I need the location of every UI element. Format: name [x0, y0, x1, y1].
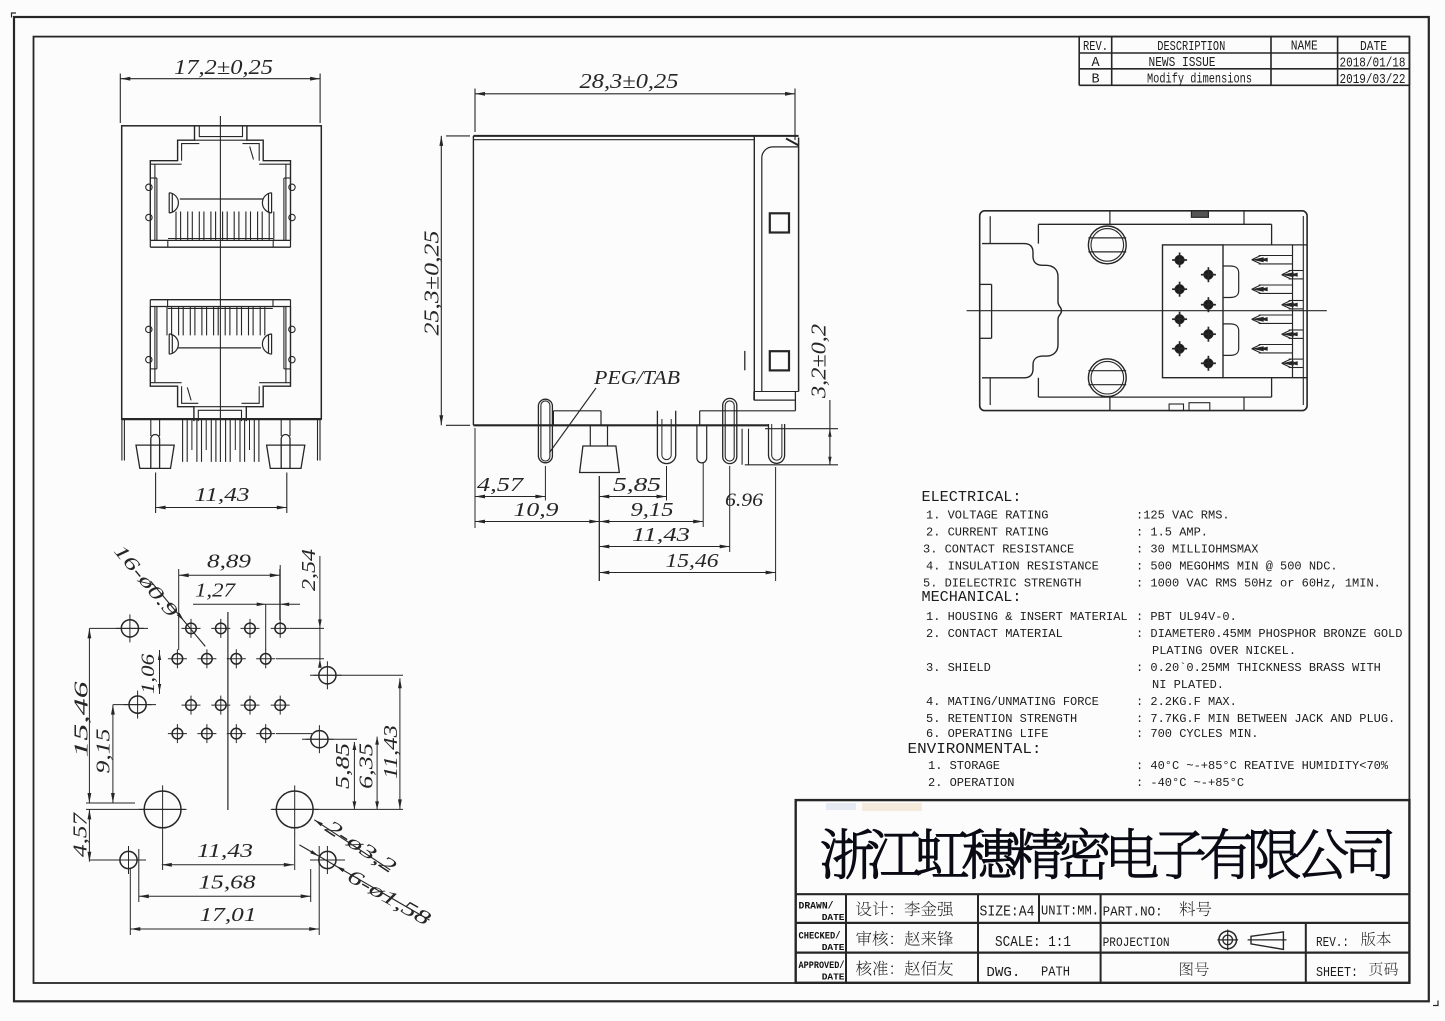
- svg-text:2. CONTACT MATERIAL: 2. CONTACT MATERIAL: [926, 627, 1063, 641]
- svg-text:SIZE:A4: SIZE:A4: [980, 903, 1035, 920]
- svg-text:REV.:: REV.:: [1316, 936, 1349, 951]
- svg-text:DRAWN/: DRAWN/: [799, 901, 834, 913]
- svg-text:ELECTRICAL:: ELECTRICAL:: [922, 488, 1022, 506]
- svg-text:: 30 MILLIOHMSMAX: : 30 MILLIOHMSMAX: [1136, 543, 1258, 557]
- svg-text:PART.NO:: PART.NO:: [1103, 904, 1163, 920]
- svg-text:1,27: 1,27: [195, 580, 236, 602]
- svg-text:NAME: NAME: [1291, 40, 1318, 55]
- svg-text:PLATING OVER NICKEL.: PLATING OVER NICKEL.: [1152, 644, 1296, 658]
- svg-text:8,89: 8,89: [207, 551, 251, 573]
- svg-text:: 500 MEGOHMS MIN @ 500 NDC.: : 500 MEGOHMS MIN @ 500 NDC.: [1136, 560, 1338, 574]
- svg-text:11,43: 11,43: [197, 840, 253, 862]
- svg-text:3. CONTACT RESISTANCE: 3. CONTACT RESISTANCE: [923, 543, 1074, 557]
- svg-text:: 1.5 AMP.: : 1.5 AMP.: [1136, 526, 1208, 540]
- svg-text:11,43: 11,43: [195, 484, 250, 506]
- svg-text:DATE: DATE: [1360, 40, 1387, 55]
- svg-text:9,15: 9,15: [631, 499, 674, 521]
- svg-text:4. INSULATION RESISTANCE: 4. INSULATION RESISTANCE: [926, 560, 1099, 574]
- svg-text:CHECKED/: CHECKED/: [799, 931, 841, 943]
- svg-text:6. OPERATING LIFE: 6. OPERATING LIFE: [926, 727, 1048, 741]
- svg-text:2. CURRENT RATING: 2. CURRENT RATING: [926, 526, 1048, 540]
- svg-text:1. HOUSING & INSERT MATERIAL: 1. HOUSING & INSERT MATERIAL: [926, 610, 1128, 624]
- svg-text:11,43: 11,43: [380, 725, 402, 779]
- svg-text:2019/03/22: 2019/03/22: [1340, 73, 1406, 88]
- svg-text:: 2.2KG.F MAX.: : 2.2KG.F MAX.: [1136, 695, 1237, 709]
- svg-text:1. VOLTAGE RATING: 1. VOLTAGE RATING: [926, 509, 1048, 523]
- svg-text:15,46: 15,46: [666, 550, 719, 572]
- svg-text:3. SHIELD: 3. SHIELD: [926, 661, 991, 675]
- svg-text:10,9: 10,9: [514, 499, 559, 521]
- svg-text:15,46: 15,46: [71, 682, 93, 758]
- svg-text:SCALE: 1:1: SCALE: 1:1: [995, 935, 1071, 951]
- svg-text:1. STORAGE: 1. STORAGE: [928, 759, 1000, 773]
- svg-text:1,06: 1,06: [138, 653, 159, 694]
- svg-text:REV.: REV.: [1083, 40, 1108, 55]
- svg-text:: 0.20`0.25MM THICKNESS BRASS: : 0.20`0.25MM THICKNESS BRASS WITH: [1136, 661, 1381, 675]
- svg-text:B: B: [1091, 73, 1099, 88]
- svg-text:: 700 CYCLES MIN.: : 700 CYCLES MIN.: [1136, 727, 1258, 741]
- svg-text:PROJECTION: PROJECTION: [1103, 935, 1170, 950]
- svg-text:Modify dimensions: Modify dimensions: [1147, 73, 1252, 88]
- svg-text:ENVIRONMENTAL:: ENVIRONMENTAL:: [908, 740, 1042, 758]
- svg-text:DATE: DATE: [822, 972, 845, 983]
- svg-text:NEWS ISSUE: NEWS ISSUE: [1149, 56, 1216, 71]
- svg-text:: PBT UL94V-0.: : PBT UL94V-0.: [1136, 610, 1237, 624]
- svg-text:5. RETENTION STRENGTH: 5. RETENTION STRENGTH: [926, 712, 1077, 726]
- svg-text:PATH: PATH: [1041, 964, 1070, 980]
- svg-text:3,2±0,2: 3,2±0,2: [807, 323, 831, 399]
- svg-text:9,15: 9,15: [93, 729, 115, 774]
- svg-text::125 VAC RMS.: :125 VAC RMS.: [1136, 509, 1230, 523]
- svg-text:25,3±0,25: 25,3±0,25: [420, 231, 444, 336]
- svg-text:APPROVED/: APPROVED/: [799, 960, 845, 972]
- svg-text:6,35: 6,35: [356, 743, 378, 789]
- svg-text:MECHANICAL:: MECHANICAL:: [922, 588, 1022, 606]
- svg-text:2. OPERATION: 2. OPERATION: [928, 776, 1014, 790]
- svg-text:11,43: 11,43: [632, 524, 690, 546]
- svg-text:6.96: 6.96: [725, 490, 764, 511]
- svg-text:5,85: 5,85: [332, 743, 354, 789]
- svg-text:2,54: 2,54: [298, 549, 320, 591]
- svg-text:: 1000 VAC RMS 50Hz or 60Hz,: : 1000 VAC RMS 50Hz or 60Hz, 1MIN.: [1136, 577, 1381, 591]
- svg-text:17,2±0,25: 17,2±0,25: [174, 55, 273, 79]
- svg-text:SHEET:: SHEET:: [1316, 966, 1358, 981]
- svg-text:UNIT:MM.: UNIT:MM.: [1041, 904, 1099, 920]
- svg-text:15,68: 15,68: [199, 872, 256, 894]
- svg-text:DESCRIPTION: DESCRIPTION: [1157, 40, 1225, 55]
- svg-text:4,57: 4,57: [477, 474, 524, 496]
- svg-text:2018/01/18: 2018/01/18: [1340, 56, 1406, 71]
- svg-text:4. MATING/UNMATING FORCE: 4. MATING/UNMATING FORCE: [926, 695, 1099, 709]
- svg-text:A: A: [1091, 56, 1100, 71]
- svg-text:: -40°C ~-+85°C: : -40°C ~-+85°C: [1136, 776, 1244, 790]
- svg-text:: DIAMETER0.45MM PHOSPHOR BRON: : DIAMETER0.45MM PHOSPHOR BRONZE GOLD: [1136, 627, 1402, 641]
- svg-text:5,85: 5,85: [613, 474, 661, 496]
- svg-text:: 40°C ~-+85°C REATIVE HUMIDI: : 40°C ~-+85°C REATIVE HUMIDITY<70%: [1136, 759, 1389, 773]
- svg-text:NI PLATED.: NI PLATED.: [1152, 678, 1224, 692]
- svg-text:DWG.: DWG.: [986, 965, 1020, 981]
- svg-text:DATE: DATE: [822, 912, 845, 923]
- svg-text:: 7.7KG.F MIN BETWEEN JACK AND: : 7.7KG.F MIN BETWEEN JACK AND PLUG.: [1136, 712, 1395, 726]
- svg-text:28,3±0,25: 28,3±0,25: [580, 69, 679, 93]
- svg-text:5. DIELECTRIC STRENGTH: 5. DIELECTRIC STRENGTH: [923, 577, 1081, 591]
- svg-text:DATE: DATE: [822, 942, 845, 953]
- svg-text:17,01: 17,01: [200, 904, 257, 926]
- svg-text:4,57: 4,57: [70, 812, 92, 857]
- svg-text:PEG/TAB: PEG/TAB: [593, 367, 680, 389]
